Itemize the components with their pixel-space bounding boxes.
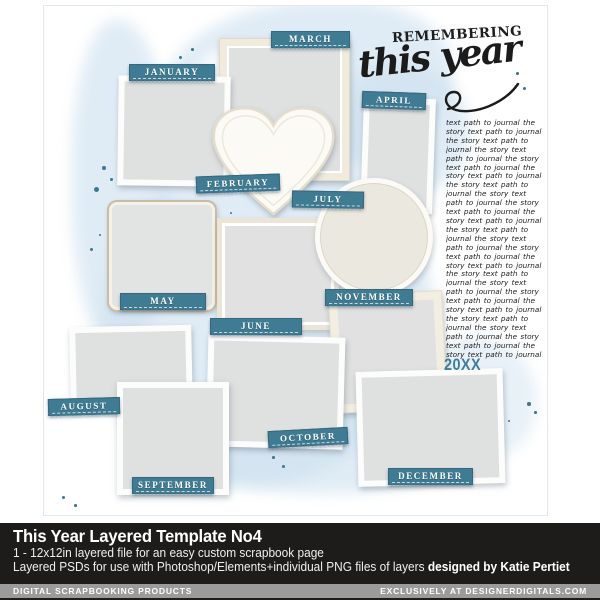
paint-splatter-dot: [527, 402, 531, 406]
paint-splatter-dot: [534, 411, 537, 414]
month-label-december: DECEMBER: [388, 468, 473, 485]
product-title: This Year Layered Template No4: [13, 527, 558, 545]
paint-splatter-dot: [523, 87, 526, 90]
month-label-april: APRIL: [362, 91, 427, 110]
month-label-march: MARCH: [271, 31, 350, 48]
month-label-august: AUGUST: [48, 397, 120, 416]
product-caption-bar: This Year Layered Template No4 1 - 12x12…: [0, 523, 600, 584]
month-label-october: OCTOBER: [268, 427, 349, 448]
paint-splatter-dot: [516, 72, 519, 75]
paint-splatter-dot: [179, 56, 182, 59]
paint-splatter-dot: [90, 248, 93, 251]
photo-placeholder: [123, 388, 223, 489]
product-description: Layered PSDs for use with Photoshop/Elem…: [13, 560, 558, 574]
paint-splatter-dot: [99, 234, 101, 236]
description-text: Layered PSDs for use with Photoshop/Elem…: [13, 560, 425, 574]
photo-placeholder: [362, 374, 500, 480]
designer-credit: designed by Katie Pertiet: [428, 560, 570, 574]
year-text: 20XX: [444, 355, 481, 375]
product-preview-image: JANUARY FEBRUARY MARCH APRIL MAY JUNE JU…: [0, 0, 600, 600]
journaling-text-block: text path to journal the story text path…: [446, 119, 546, 362]
paint-splatter-dot: [102, 166, 106, 170]
paint-splatter-dot: [272, 456, 275, 459]
brand-left-text: DIGITAL SCRAPBOOKING PRODUCTS: [13, 586, 192, 596]
paint-splatter-dot: [74, 504, 77, 507]
month-label-january: JANUARY: [129, 64, 215, 81]
scrapbook-page-canvas: JANUARY FEBRUARY MARCH APRIL MAY JUNE JU…: [43, 5, 548, 516]
paint-splatter-dot: [94, 187, 99, 192]
month-label-june: JUNE: [210, 318, 302, 335]
month-label-november: NOVEMBER: [325, 289, 413, 306]
brand-bar: DIGITAL SCRAPBOOKING PRODUCTS EXCLUSIVEL…: [0, 584, 600, 598]
month-label-february: FEBRUARY: [196, 174, 281, 194]
month-label-may: MAY: [120, 293, 206, 310]
paint-splatter-dot: [282, 465, 285, 468]
product-subtitle: 1 - 12x12in layered file for an easy cus…: [13, 546, 558, 560]
paint-splatter-dot: [191, 48, 194, 51]
paint-splatter-dot: [110, 178, 113, 181]
brand-right-text: EXCLUSIVELY AT DESIGNERDIGITALS.COM: [380, 586, 587, 596]
paint-splatter-dot: [508, 420, 510, 422]
month-label-september: SEPTEMBER: [132, 477, 214, 494]
month-label-july: JULY: [292, 190, 364, 208]
calligraphy-swash: [430, 82, 522, 116]
paint-splatter-dot: [62, 496, 65, 499]
